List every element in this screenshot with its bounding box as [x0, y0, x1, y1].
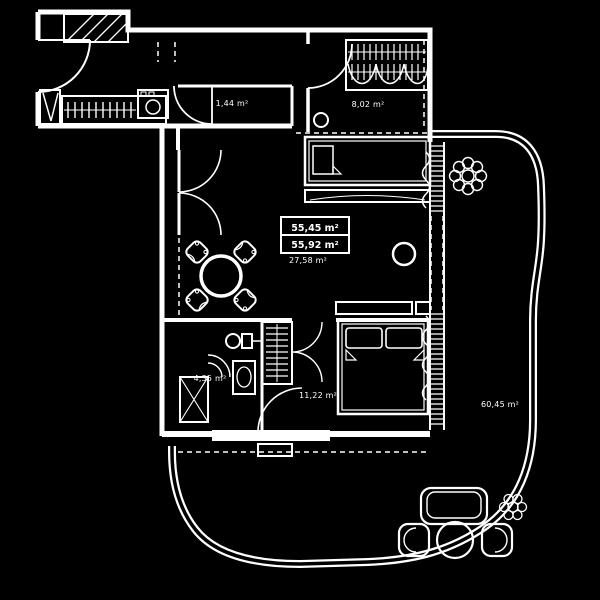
terrace-step: [258, 444, 292, 456]
living-room: 55,45 m² 55,92 m² 27,58 m²: [179, 137, 430, 313]
total-area-line1: 55,45 m²: [291, 223, 338, 234]
living-double-door-icon: [179, 150, 221, 235]
washing-machine-icon: [138, 90, 168, 118]
shower-icon: [180, 355, 230, 422]
window-wall-right: [430, 142, 444, 430]
bedroom-door-icon: [258, 388, 302, 432]
bathroom-area-label: 4,35 m²: [194, 374, 227, 383]
living-room-area-label: 27,58 m²: [289, 256, 327, 265]
floor-plan-drawing: 8,02 m² 1,44 m²: [0, 0, 600, 600]
total-area-line2: 55,92 m²: [291, 240, 338, 251]
wc-door-icon: [174, 86, 212, 124]
hall-wc-area-label: 1,44 m²: [216, 99, 249, 108]
bottom-window-band: [212, 430, 330, 441]
terrace: 60,45 m²: [399, 158, 527, 559]
floor-plan-canvas: 8,02 m² 1,44 m²: [0, 0, 600, 600]
sink-icon: [233, 361, 255, 394]
double-bed-icon: [338, 320, 428, 414]
total-area-box: 55,45 m² 55,92 m²: [281, 217, 349, 253]
dining-table-icon: [201, 256, 241, 296]
toilet-icon: [226, 334, 262, 348]
daybed-icon: [305, 137, 430, 185]
ceiling-lamp-icon: [393, 243, 415, 265]
bathroom: 4,35 m²: [180, 334, 262, 422]
terrace-sofa-icon: [421, 488, 487, 524]
column-icon: [314, 113, 328, 127]
bedroom-wardrobe-icon: [262, 322, 322, 384]
plant-icon: [450, 158, 487, 195]
bedroom-small-wardrobe-icon: [346, 40, 428, 90]
bedroom-area-label: 11,22 m²: [299, 391, 337, 400]
console-icon: [305, 190, 430, 202]
entrance-door-icon: [38, 40, 90, 92]
bedroom-small-area-label: 8,02 m²: [352, 100, 385, 109]
bedroom-small: 8,02 m²: [308, 40, 428, 127]
sideboard-icon: [336, 302, 430, 314]
terrace-area-label: 60,45 m²: [481, 400, 519, 409]
